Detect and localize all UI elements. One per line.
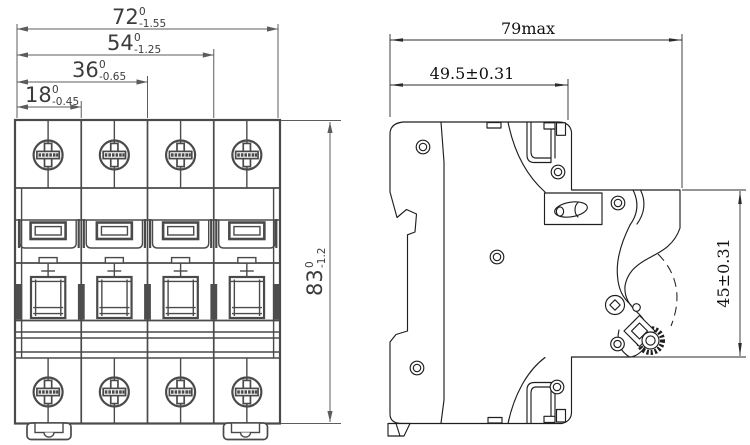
dim-tol-upper: 0 [99, 59, 106, 71]
dim-tol-lower: -1.25 [134, 44, 161, 56]
dim-tol-lower: -0.45 [52, 96, 79, 108]
cam-circle [606, 296, 625, 315]
dimension-width-18: 18 0 -0.45 [25, 83, 79, 108]
dimension-height-83: 83 0 -1.2 [303, 248, 328, 297]
dim-tol-upper: 0 [139, 6, 146, 18]
dim-tol-lower: -1.55 [139, 18, 166, 30]
technical-drawing-page: 72 0 -1.55 54 0 -1.25 36 0 -0.65 18 0 -0… [0, 0, 750, 445]
dim-value: 72 [112, 5, 139, 29]
side-view [388, 122, 680, 436]
mounting-foot-left [27, 423, 71, 440]
rivet-icon [551, 165, 565, 179]
rivet-icon [490, 250, 504, 264]
dimension-depth-79max: 79max [501, 19, 555, 38]
dim-value: 36 [72, 58, 99, 82]
dimension-width-36: 36 0 -0.65 [72, 58, 126, 83]
rivet-icon [416, 140, 430, 154]
rivet-icon [611, 337, 625, 351]
rivet-icon [550, 380, 564, 394]
dimension-width-54: 54 0 -1.25 [107, 31, 161, 56]
top-edge-notch [487, 123, 501, 129]
dim-value: 18 [25, 83, 52, 107]
mounting-foot-right [224, 423, 268, 440]
dim-tol-lower: -0.65 [99, 71, 126, 83]
dim-value: 54 [107, 31, 134, 55]
rivet-icon [410, 361, 424, 375]
dim-tol-lower: -1.2 [316, 248, 328, 269]
lever-travel-arc [658, 254, 677, 326]
breaker-dimension-drawing: 72 0 -1.55 54 0 -1.25 36 0 -0.65 18 0 -0… [0, 0, 750, 445]
toggle-lever-end [556, 207, 563, 216]
dimension-depth-49-5: 49.5±0.31 [430, 64, 515, 83]
dim-value: 83 [303, 269, 327, 296]
gear-hub-inner [646, 336, 655, 345]
dimension-width-72: 72 0 -1.55 [112, 5, 166, 30]
dim-tol-upper: 0 [304, 261, 316, 268]
pivot-pin [633, 304, 641, 312]
toggle-handle [545, 193, 603, 225]
dim-tol-upper: 0 [134, 32, 141, 44]
bottom-edge-notch [488, 418, 502, 424]
rivet-icon [611, 196, 625, 210]
dim-tol-upper: 0 [52, 84, 59, 96]
dimension-height-45: 45±0.31 [714, 238, 733, 307]
side-body-outline [390, 122, 680, 424]
front-view [15, 120, 280, 440]
